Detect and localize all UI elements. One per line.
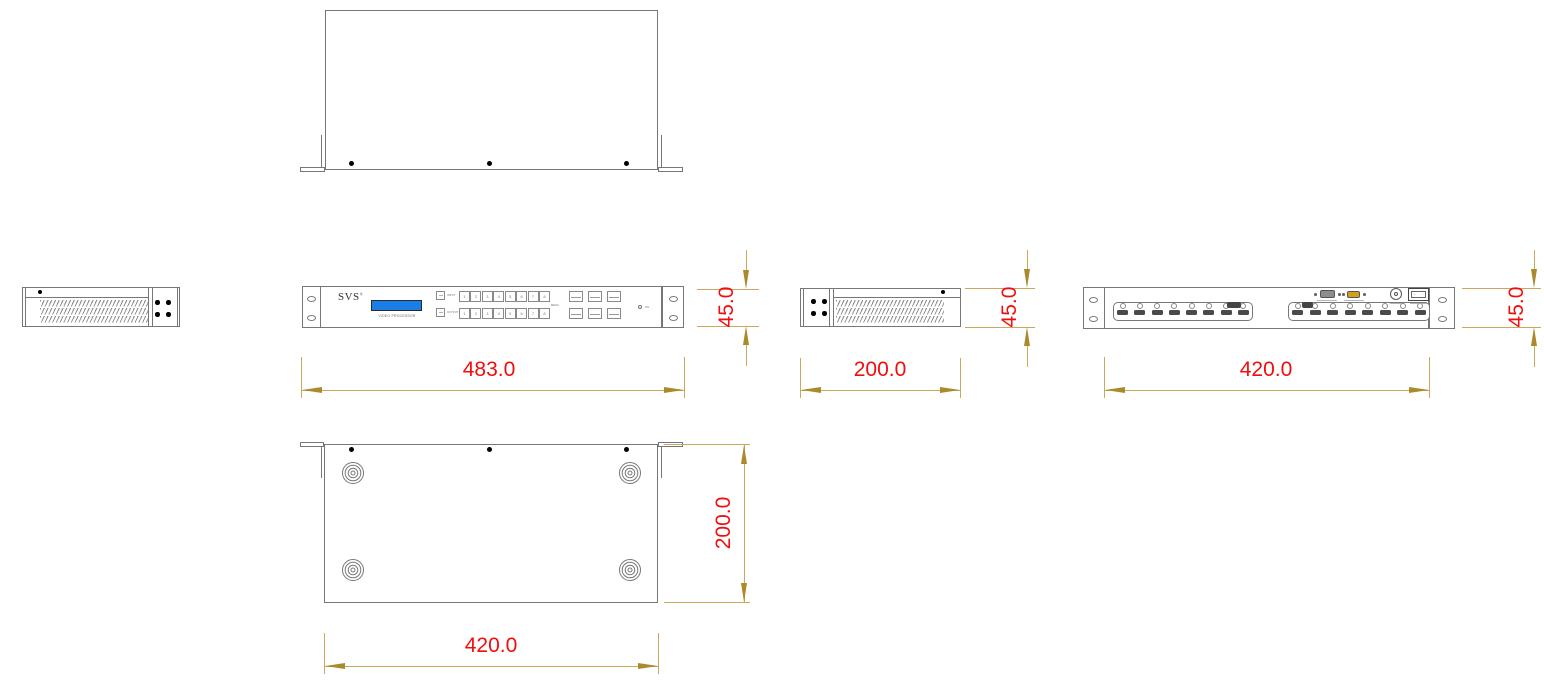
arrowhead	[1531, 327, 1537, 346]
hdmi-port	[1310, 310, 1321, 315]
hdmi-port	[1117, 310, 1128, 315]
rack-ear-edge-line	[661, 135, 662, 167]
rack-ear	[662, 286, 684, 328]
bezel-line	[177, 287, 178, 327]
hdmi-port-row	[1292, 310, 1426, 315]
output-button: 6	[516, 308, 527, 319]
screw-hole	[1169, 303, 1180, 309]
screw-dot	[1342, 293, 1345, 296]
mounting-dot	[624, 447, 629, 452]
round-connector	[1390, 288, 1402, 300]
screw-dot	[811, 311, 816, 316]
dimension-line	[1104, 390, 1429, 391]
arrowhead	[1024, 327, 1030, 346]
button-label: 2	[475, 311, 477, 316]
hdmi-port	[1327, 310, 1338, 315]
button-label: 1	[463, 311, 465, 316]
button-label: 7	[532, 311, 534, 316]
button-label: 2	[475, 294, 477, 299]
screw-hole	[1117, 303, 1128, 309]
button-label: 3	[486, 294, 488, 299]
dimension-line	[301, 390, 684, 391]
rack-ear	[302, 286, 321, 328]
hdmi-port	[1345, 310, 1356, 315]
connector-label	[1317, 300, 1337, 301]
brand-text: SVS	[338, 291, 360, 303]
arrowhead	[302, 387, 322, 393]
output-button: 8	[539, 308, 550, 319]
rack-ear	[1083, 287, 1105, 329]
control-button	[569, 291, 583, 302]
screw-dot	[166, 300, 171, 305]
connector-label	[1390, 303, 1402, 304]
screw-dot	[1363, 293, 1366, 296]
screw-dot	[1338, 293, 1341, 296]
hdmi-port-row	[1117, 310, 1249, 315]
hdmi-port	[1169, 310, 1180, 315]
arrowhead	[664, 387, 684, 393]
function-button	[436, 291, 445, 300]
screw-hole	[1152, 303, 1163, 309]
screw-dot	[822, 299, 827, 304]
arrowhead	[325, 663, 345, 669]
button-label: 1	[463, 294, 465, 299]
vent-grille	[40, 300, 148, 323]
extension-line	[664, 602, 750, 603]
rubber-foot	[618, 461, 642, 485]
mounting-dot	[487, 447, 492, 452]
dimension-value: 200.0	[715, 483, 733, 563]
input-button: 2	[470, 291, 481, 302]
extension-line	[658, 633, 659, 674]
screw-dot	[941, 290, 945, 294]
connector-label	[1410, 303, 1427, 304]
arrowhead	[1531, 269, 1537, 288]
screw-dot	[166, 312, 171, 317]
hdmi-port	[1238, 310, 1249, 315]
input-row-label: INPUT	[447, 294, 456, 297]
screw-hole	[1327, 303, 1338, 309]
mounting-dot	[349, 161, 354, 166]
screw-dot	[822, 311, 827, 316]
button-label: 8	[543, 294, 545, 299]
rubber-foot	[341, 461, 365, 485]
arrowhead	[940, 387, 960, 393]
arrowhead	[743, 270, 749, 289]
button-label: 4	[498, 311, 500, 316]
rack-ear	[1429, 287, 1455, 329]
hdmi-port	[1415, 310, 1426, 315]
bezel-line	[803, 288, 804, 327]
control-button	[588, 308, 602, 319]
input-button: 1	[459, 291, 470, 302]
power-led	[638, 305, 642, 309]
power-rocker: — ○	[1411, 291, 1426, 298]
input-button: 3	[482, 291, 493, 302]
brand-mark: ®	[360, 291, 364, 296]
extension-line	[664, 444, 750, 445]
extension-line	[960, 358, 961, 398]
mounting-dot	[624, 161, 629, 166]
output-button-row: 1 2 3 4 5 6 7 8	[459, 308, 550, 319]
oval-hole	[669, 296, 678, 302]
control-button	[569, 308, 583, 319]
screw-dot	[155, 300, 160, 305]
dimension-value: 420.0	[1226, 361, 1306, 379]
divider-line	[829, 288, 830, 327]
arrowhead	[638, 663, 658, 669]
dimension-leader	[1534, 250, 1535, 271]
output-button: 1	[459, 308, 470, 319]
arrowhead	[743, 326, 749, 345]
divider-line	[152, 287, 153, 327]
button-glyph	[439, 295, 443, 296]
top-view-body	[325, 10, 658, 170]
bottom-body	[324, 444, 658, 603]
top-strip-line	[833, 297, 961, 298]
dimension-value: 45.0	[718, 282, 736, 332]
button-label: 6	[520, 311, 522, 316]
screw-hole	[1362, 303, 1373, 309]
screw-hole	[1134, 303, 1145, 309]
lcd-display	[371, 300, 422, 311]
extension-line	[1462, 327, 1541, 328]
dark-connector	[1227, 302, 1241, 308]
dimension-leader	[1534, 346, 1535, 367]
usb-connector	[1347, 291, 1360, 298]
button-label: 7	[532, 294, 534, 299]
rack-ear-edge-line	[661, 447, 662, 478]
arrowhead	[1409, 387, 1429, 393]
dark-connector	[1302, 302, 1313, 308]
dimension-line	[800, 390, 961, 391]
dimension-leader	[1027, 346, 1028, 367]
dimension-value: 45.0	[1001, 282, 1019, 332]
control-button-row	[569, 308, 621, 319]
connector-label	[1344, 300, 1364, 301]
top-strip-line	[25, 297, 148, 298]
rack-ear-flange	[658, 167, 683, 172]
divider-line	[148, 287, 149, 327]
button-label: 4	[498, 294, 500, 299]
screw-hole	[1203, 303, 1214, 309]
oval-hole	[307, 296, 316, 302]
brand-logo: SVS®	[338, 291, 363, 303]
round-connector-pin	[1394, 292, 1398, 296]
oval-hole	[307, 315, 316, 321]
dimension-line	[324, 666, 658, 667]
power-off-symbol: ○	[1422, 293, 1424, 296]
divider-line	[833, 288, 834, 327]
oval-hole	[1438, 297, 1447, 303]
extension-line	[1429, 357, 1430, 398]
hdmi-port	[1362, 310, 1373, 315]
hdmi-port	[1397, 310, 1408, 315]
control-button	[607, 308, 621, 319]
hdmi-port	[1221, 310, 1232, 315]
technical-drawing: SVS® VIDEO PROCESSOR INPUT 1 2 3 4 5 6 7…	[0, 0, 1544, 696]
output-button: 7	[528, 308, 539, 319]
output-button: 4	[493, 308, 504, 319]
arrowhead	[741, 445, 747, 464]
power-switch: — ○	[1408, 288, 1429, 301]
screw-dot	[155, 312, 160, 317]
button-label: 3	[486, 311, 488, 316]
display-label: VIDEO PROCESSOR	[360, 315, 434, 318]
hdmi-port	[1380, 310, 1391, 315]
output-row-label: OUTPUT	[447, 311, 458, 314]
output-button: 5	[505, 308, 516, 319]
oval-hole	[1089, 297, 1098, 303]
extension-line	[684, 357, 685, 398]
arrowhead	[1024, 269, 1030, 288]
mounting-dot	[487, 161, 492, 166]
dimension-value: 483.0	[449, 361, 529, 379]
button-label: 5	[509, 311, 511, 316]
input-button: 7	[528, 291, 539, 302]
bezel-line	[25, 287, 26, 327]
serial-connector	[1320, 290, 1335, 298]
screw-dot	[811, 299, 816, 304]
dimension-line	[744, 445, 745, 602]
arrowhead	[801, 387, 821, 393]
button-label: 8	[543, 311, 545, 316]
control-button	[607, 291, 621, 302]
output-button: 2	[470, 308, 481, 319]
dimension-leader	[746, 250, 747, 271]
rubber-foot	[618, 558, 642, 582]
function-button	[436, 308, 445, 317]
screw-dot	[38, 290, 42, 294]
output-button: 3	[482, 308, 493, 319]
button-label: 6	[520, 294, 522, 299]
rack-ear-flange	[300, 167, 325, 172]
rubber-foot	[341, 558, 365, 582]
input-button: 6	[516, 291, 527, 302]
hdmi-port	[1203, 310, 1214, 315]
mounting-dot	[349, 447, 354, 452]
menu-label: MENU	[551, 304, 559, 307]
extension-line	[1462, 288, 1541, 289]
button-glyph	[439, 312, 443, 313]
oval-hole	[1438, 316, 1447, 322]
hdmi-port	[1152, 310, 1163, 315]
control-button-row	[569, 291, 621, 302]
oval-hole	[1089, 316, 1098, 322]
dimension-value: 45.0	[1508, 282, 1526, 332]
control-button	[588, 291, 602, 302]
hdmi-port	[1134, 310, 1145, 315]
dimension-leader	[1027, 250, 1028, 271]
rack-ear-edge-line	[321, 447, 322, 478]
oval-hole	[669, 315, 678, 321]
power-on-symbol: —	[1414, 293, 1417, 296]
input-button: 5	[505, 291, 516, 302]
screw-hole	[1186, 303, 1197, 309]
arrowhead	[1105, 387, 1125, 393]
screw-dot	[1314, 293, 1317, 296]
input-button: 8	[539, 291, 550, 302]
dimension-value: 420.0	[451, 637, 531, 655]
screw-hole	[1345, 303, 1356, 309]
power-led-label: ON	[645, 306, 649, 309]
input-button: 4	[493, 291, 504, 302]
hdmi-port	[1186, 310, 1197, 315]
rack-ear-edge-line	[321, 135, 322, 167]
hdmi-port	[1292, 310, 1303, 315]
vent-grille	[836, 300, 944, 323]
dimension-leader	[746, 345, 747, 366]
arrowhead	[741, 583, 747, 602]
button-label: 5	[509, 294, 511, 299]
input-button-row: 1 2 3 4 5 6 7 8	[459, 291, 550, 302]
dimension-value: 200.0	[840, 361, 920, 379]
